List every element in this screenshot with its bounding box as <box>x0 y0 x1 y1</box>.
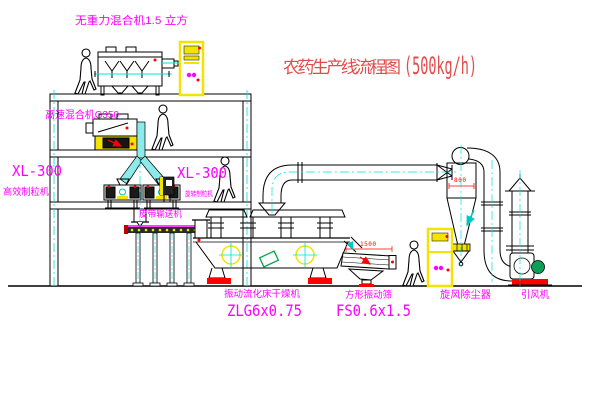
label-fan-name: 引风机 <box>521 288 549 301</box>
label-granulator-right-name: 旋转制粒机 <box>185 189 213 198</box>
label-granulator-left-model: XL-300 <box>12 162 62 180</box>
worker-figure-4 <box>403 241 424 286</box>
label-cyclone-name: 旋风除尘器 <box>440 288 491 301</box>
label-granulator-left-name: 高效制粒机 <box>3 186 49 198</box>
label-granulator-right-model: XL-300 <box>177 164 227 182</box>
control-cabinet-sieve <box>428 229 452 286</box>
control-cabinet-top <box>180 42 203 95</box>
dim-cyclone-width: 800 <box>454 177 466 184</box>
fluid-bed-dryer <box>192 210 362 284</box>
label-sieve-model: FS0.6x1.5 <box>336 301 411 320</box>
label-belt-conveyor: 皮带输送机 <box>139 208 182 220</box>
label-gravityless-mixer: 无重力混合机1.5 立方 <box>75 13 188 27</box>
cad-flow-diagram: 农药生产线流程图 (500kg/h) 无重力混合机1.5 立方 高速混合机G35… <box>0 0 600 403</box>
exhaust-duct <box>259 162 452 215</box>
diagram-canvas: 农药生产线流程图 (500kg/h) 无重力混合机1.5 立方 高速混合机G35… <box>0 0 600 403</box>
dim-sieve-width: 1500 <box>360 241 376 248</box>
label-high-speed-mixer: 高速混合机G350 <box>45 108 119 121</box>
label-dryer-name: 振动流化床干燥机 <box>224 288 300 300</box>
title-text: 农药生产线流程图 <box>283 58 401 77</box>
worker-figure-1 <box>75 49 96 94</box>
title-capacity: (500kg/h) <box>404 52 477 80</box>
duct-centerline-2 <box>272 172 458 213</box>
worker-figure-2 <box>152 105 173 150</box>
gravityless-mixer <box>94 47 180 95</box>
label-sieve-name: 方形振动筛 <box>345 289 392 301</box>
label-dryer-model: ZLG6x0.75 <box>227 301 302 320</box>
belt-conveyor <box>124 225 202 286</box>
